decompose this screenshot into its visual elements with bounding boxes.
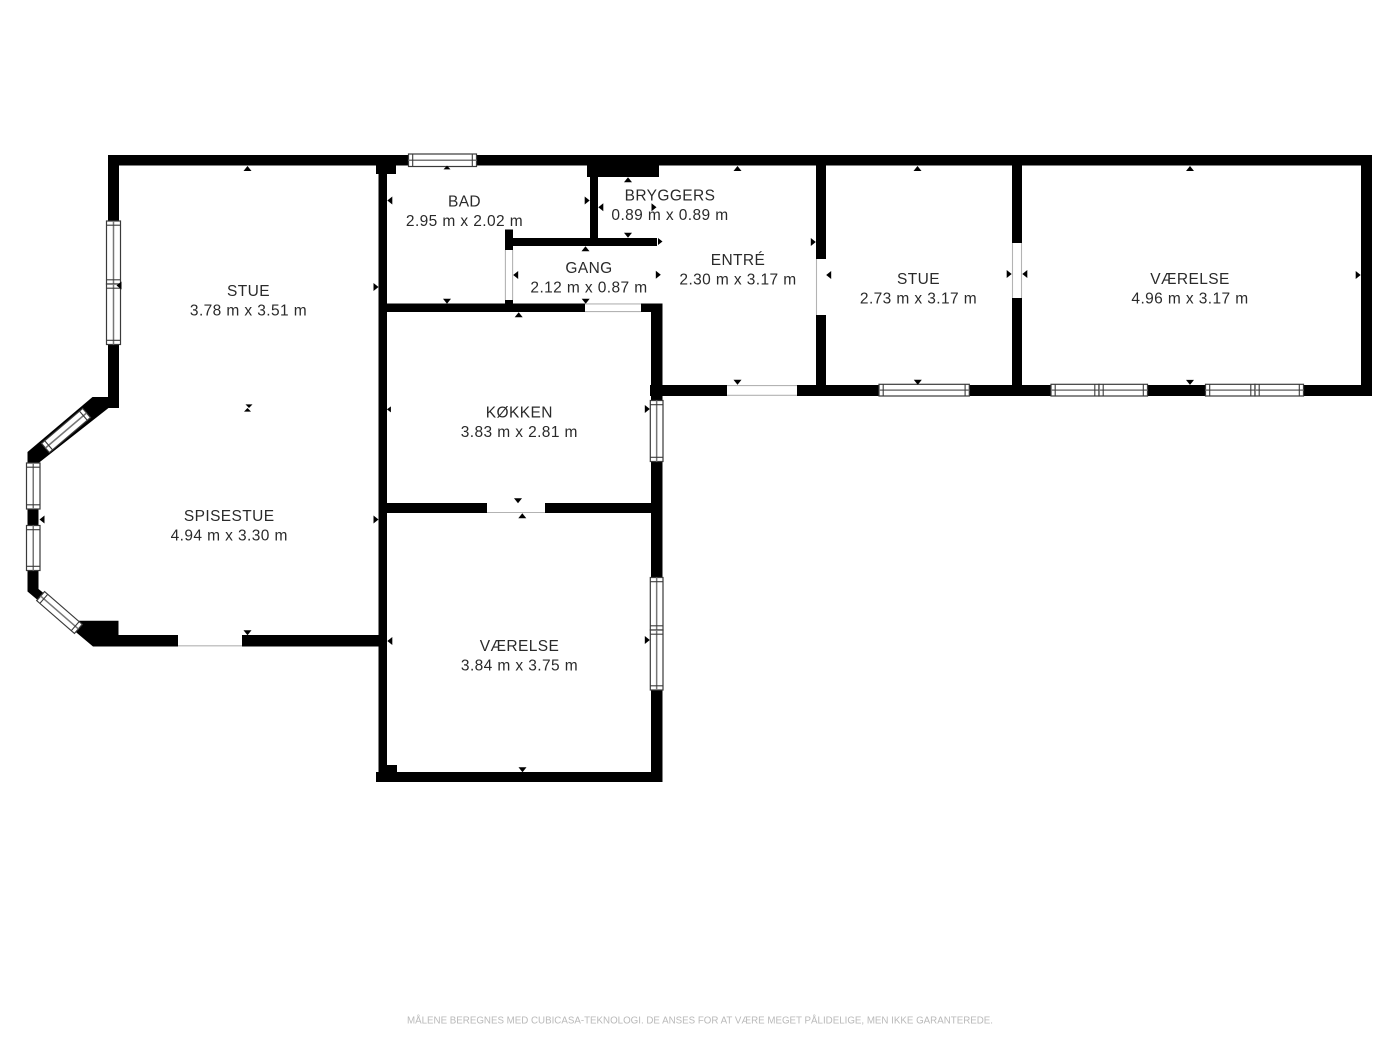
- svg-text:3.84 m x 3.75 m: 3.84 m x 3.75 m: [461, 657, 578, 674]
- svg-text:ENTRÉ: ENTRÉ: [711, 252, 766, 269]
- svg-text:SPISESTUE: SPISESTUE: [184, 508, 275, 525]
- svg-text:2.95 m x 2.02 m: 2.95 m x 2.02 m: [406, 213, 523, 230]
- svg-text:MÅLENE BEREGNES MED CUBICASA-T: MÅLENE BEREGNES MED CUBICASA-TEKNOLOGI. …: [407, 1014, 993, 1027]
- svg-text:2.30 m x 3.17 m: 2.30 m x 3.17 m: [679, 271, 796, 288]
- svg-text:3.83 m x 2.81 m: 3.83 m x 2.81 m: [461, 424, 578, 441]
- svg-text:VÆRELSE: VÆRELSE: [480, 638, 559, 655]
- svg-text:4.94 m x 3.30 m: 4.94 m x 3.30 m: [171, 528, 288, 545]
- svg-text:2.12 m x 0.87 m: 2.12 m x 0.87 m: [530, 280, 647, 297]
- svg-text:BRYGGERS: BRYGGERS: [625, 187, 716, 204]
- svg-text:4.96 m x 3.17 m: 4.96 m x 3.17 m: [1131, 291, 1248, 308]
- svg-text:VÆRELSE: VÆRELSE: [1150, 271, 1229, 288]
- svg-text:3.78 m x 3.51 m: 3.78 m x 3.51 m: [190, 303, 307, 320]
- svg-text:STUE: STUE: [227, 283, 270, 300]
- svg-text:BAD: BAD: [448, 193, 481, 210]
- svg-text:0.89 m x 0.89 m: 0.89 m x 0.89 m: [611, 207, 728, 224]
- svg-text:STUE: STUE: [897, 271, 940, 288]
- svg-text:2.73 m x 3.17 m: 2.73 m x 3.17 m: [860, 290, 977, 307]
- svg-text:KØKKEN: KØKKEN: [486, 405, 553, 422]
- svg-text:GANG: GANG: [565, 260, 612, 277]
